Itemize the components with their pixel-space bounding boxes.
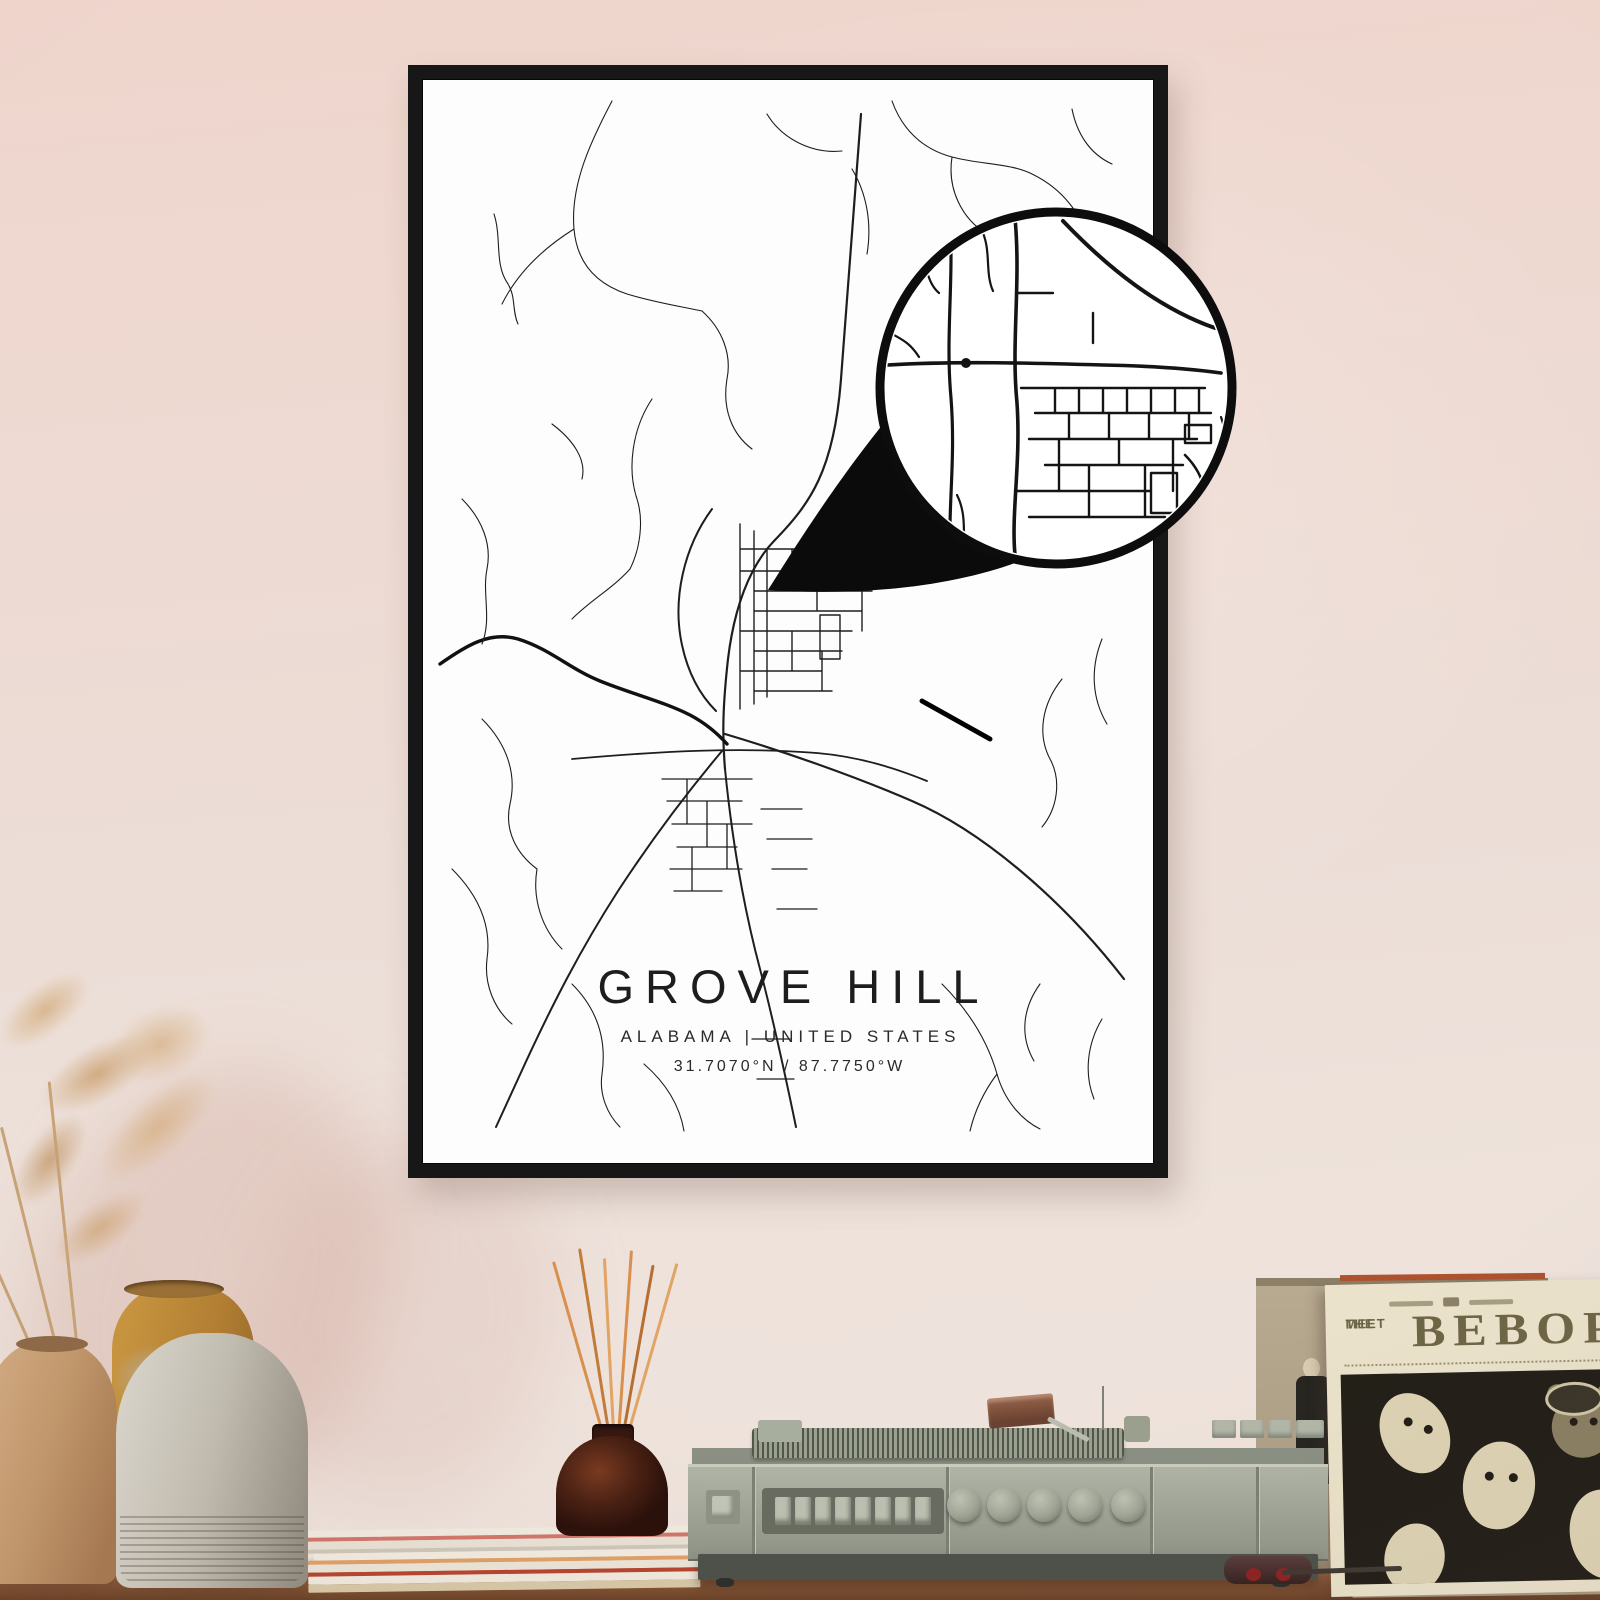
deck-key: [1212, 1420, 1236, 1438]
poster-caption: GROVE HILL ALABAMA | UNITED STATES 31.70…: [422, 959, 1154, 1076]
knob: [987, 1488, 1021, 1522]
vase-tan: [0, 1342, 117, 1584]
preset-buttons: [762, 1488, 944, 1534]
platter-hub: [758, 1420, 802, 1442]
knob: [947, 1488, 981, 1522]
album-cover: MEET THE BEBOP: [1325, 1279, 1600, 1597]
record-label-logo: [1545, 1381, 1600, 1416]
vase-gray-ribs: [120, 1516, 304, 1582]
poster-subtitle: ALABAMA | UNITED STATES: [422, 1027, 1154, 1047]
knob: [1111, 1488, 1145, 1522]
red-knob-object: [1246, 1568, 1261, 1581]
poster-title: GROVE HILL: [422, 959, 1154, 1014]
tonearm-head: [987, 1393, 1055, 1429]
deck-key: [1268, 1420, 1292, 1438]
album-title: BEBOP: [1411, 1301, 1600, 1357]
cartoon-face: [1377, 1517, 1451, 1584]
tonearm-post: [1102, 1386, 1104, 1430]
deck-key: [1240, 1420, 1264, 1438]
panel-divider: [1256, 1467, 1259, 1557]
power-button: [706, 1490, 740, 1524]
map-magnifier: [753, 173, 1293, 643]
album-illustration: [1341, 1369, 1600, 1585]
vase-ochre-mouth: [124, 1280, 224, 1298]
panel-divider: [1150, 1467, 1153, 1557]
cartoon-face: [1458, 1438, 1540, 1534]
cartoon-face: [1562, 1483, 1600, 1584]
incense-bottle: [556, 1436, 668, 1536]
cartoon-face: [1366, 1380, 1465, 1486]
scene: GROVE HILL ALABAMA | UNITED STATES 31.70…: [0, 0, 1600, 1600]
vase-tan-mouth: [16, 1336, 88, 1352]
airstrip: [922, 701, 990, 739]
figurine-head: [1303, 1358, 1320, 1378]
player-foot: [716, 1578, 734, 1587]
knob: [1068, 1488, 1102, 1522]
poster-coordinates: 31.7070°N / 87.7750°W: [422, 1058, 1154, 1076]
panel-divider: [752, 1467, 755, 1557]
album-header-line2: THE: [1345, 1318, 1374, 1331]
knob: [1027, 1488, 1061, 1522]
deck-key: [1296, 1420, 1324, 1438]
arm-rest: [1124, 1416, 1150, 1442]
album-rule: [1344, 1359, 1600, 1366]
